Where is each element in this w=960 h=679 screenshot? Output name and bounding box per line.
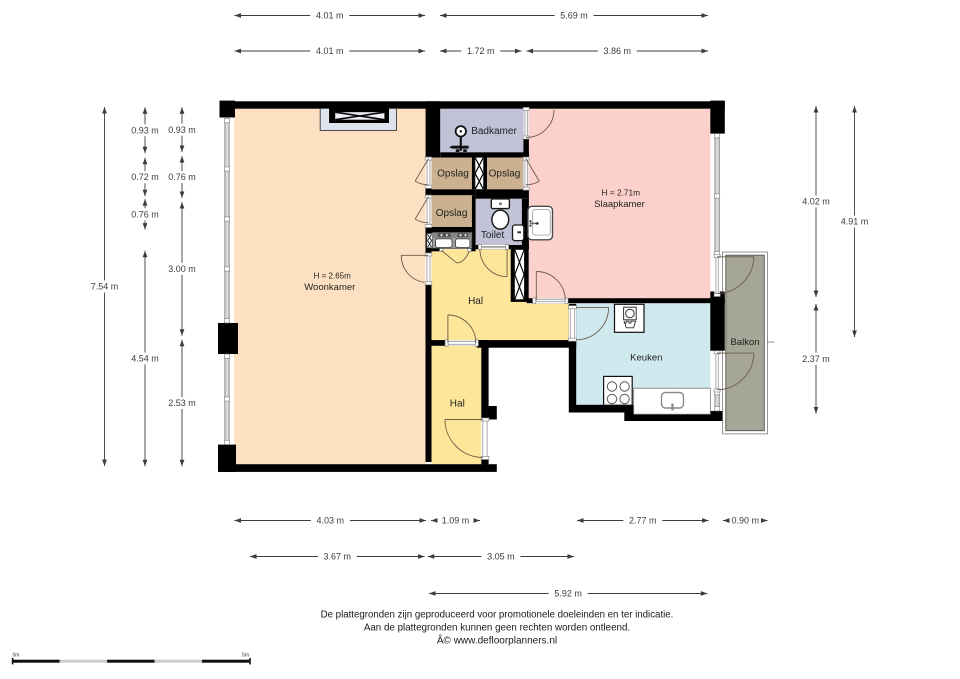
svg-text:4.01 m: 4.01 m [316,11,344,21]
svg-text:2.77 m: 2.77 m [629,516,657,526]
svg-text:3.86 m: 3.86 m [603,46,631,56]
svg-text:1.72 m: 1.72 m [467,46,495,56]
svg-text:0.90 m: 0.90 m [731,516,759,526]
svg-text:Slaapkamer: Slaapkamer [594,199,645,210]
svg-text:0.93 m: 0.93 m [131,125,159,135]
svg-text:Badkamer: Badkamer [471,126,517,137]
svg-text:1.09 m: 1.09 m [442,516,470,526]
svg-text:7.54 m: 7.54 m [91,282,119,292]
svg-text:0.76 m: 0.76 m [168,172,196,182]
svg-text:Opslag: Opslag [436,208,468,219]
svg-text:0m: 0m [13,653,20,659]
svg-text:4.03 m: 4.03 m [316,516,344,526]
svg-text:Opslag: Opslag [437,169,469,180]
svg-text:Aan de plattegronden kunnen ge: Aan de plattegronden kunnen geen rechten… [364,623,630,634]
svg-text:3.67 m: 3.67 m [324,552,352,562]
svg-text:4.91 m: 4.91 m [841,217,869,227]
svg-text:2.37 m: 2.37 m [802,354,830,364]
svg-text:3.00 m: 3.00 m [168,264,196,274]
svg-text:4.02 m: 4.02 m [802,197,830,207]
svg-text:Â© www.defloorplanners.nl: Â© www.defloorplanners.nl [437,633,557,646]
svg-text:3.05 m: 3.05 m [487,552,515,562]
svg-text:0.76 m: 0.76 m [131,210,159,220]
svg-text:Woonkamer: Woonkamer [304,282,355,293]
svg-text:5.92 m: 5.92 m [554,589,582,599]
svg-text:Opslag: Opslag [489,169,521,180]
svg-text:De plattegronden zijn geproduc: De plattegronden zijn geproduceerd voor … [321,609,674,620]
svg-text:2.53 m: 2.53 m [168,398,196,408]
svg-text:5.69 m: 5.69 m [560,11,588,21]
svg-text:4.01 m: 4.01 m [316,46,344,56]
svg-text:0.93 m: 0.93 m [168,125,196,135]
svg-text:Toilet: Toilet [481,230,505,241]
svg-text:Hal: Hal [450,399,465,410]
svg-text:H = 2.71m: H = 2.71m [602,187,641,197]
svg-text:Balkon: Balkon [730,337,759,348]
svg-text:0.72 m: 0.72 m [131,172,159,182]
svg-text:Keuken: Keuken [630,353,662,364]
svg-text:4.54 m: 4.54 m [131,354,159,364]
svg-text:H = 2.65m: H = 2.65m [314,271,351,280]
svg-text:Hal: Hal [468,296,483,307]
svg-text:5m: 5m [242,653,249,659]
